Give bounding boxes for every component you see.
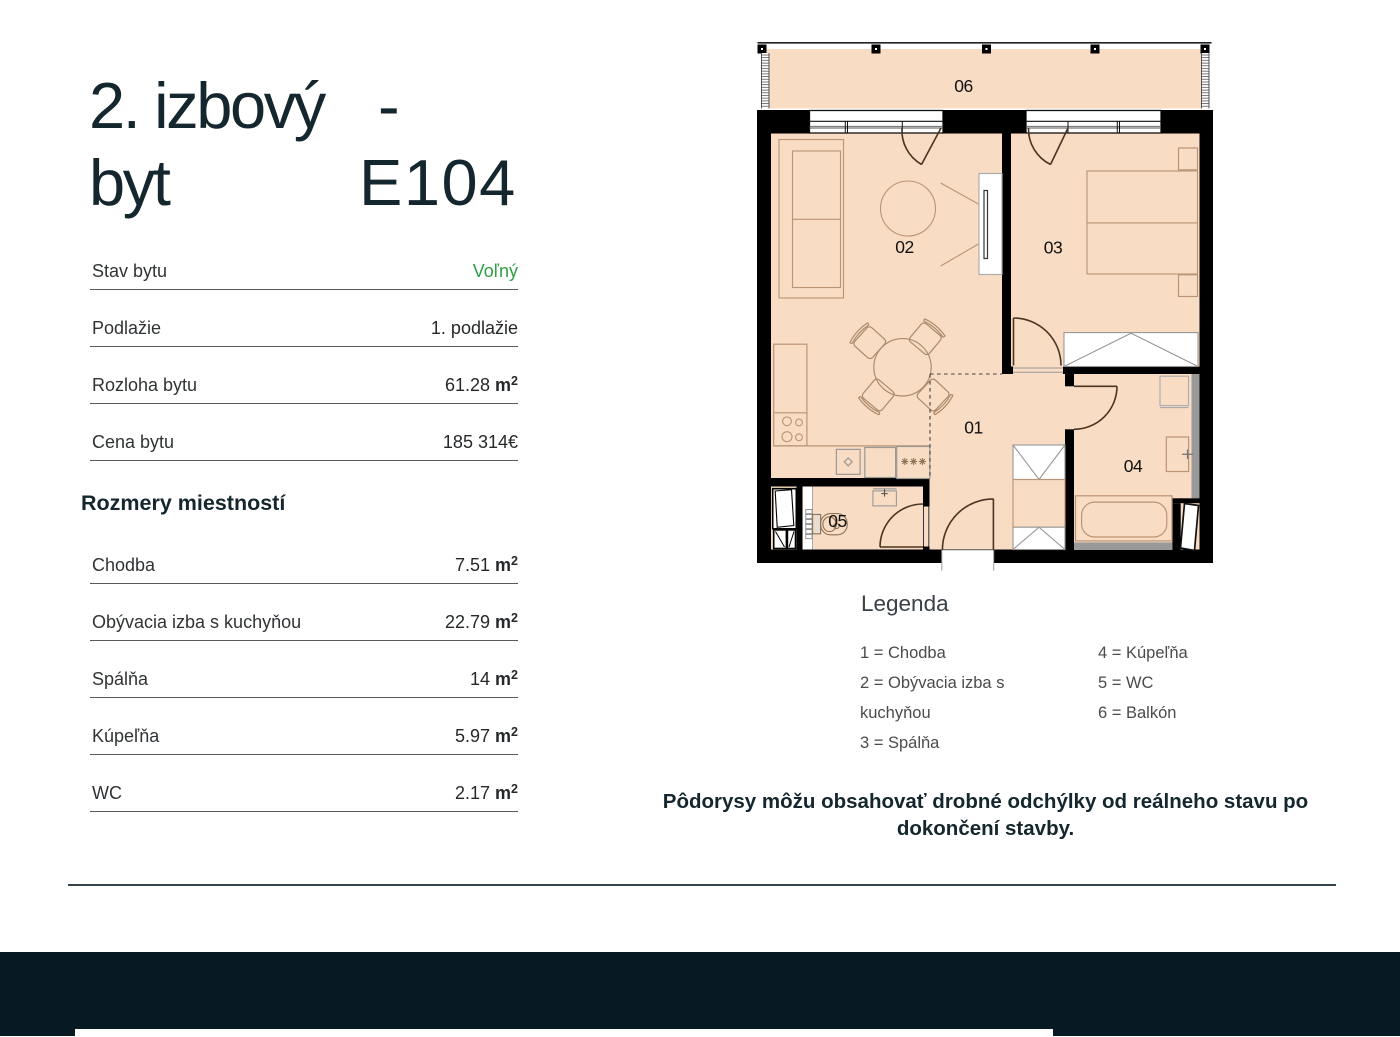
svg-text:02: 02	[895, 237, 913, 257]
svg-text:01: 01	[964, 418, 982, 438]
svg-text:06: 06	[954, 76, 972, 96]
svg-text:04: 04	[1124, 456, 1143, 476]
svg-text:05: 05	[828, 511, 846, 531]
svg-text:03: 03	[1044, 238, 1062, 258]
